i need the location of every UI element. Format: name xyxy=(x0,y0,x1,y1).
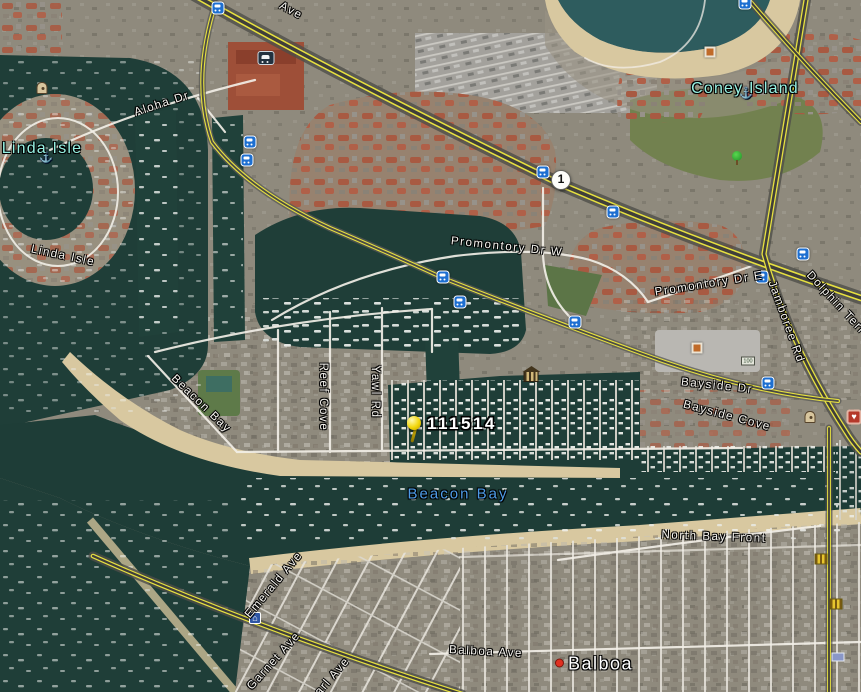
satellite-imagery xyxy=(0,0,861,692)
pushpin-head xyxy=(407,416,421,430)
map-viewport[interactable]: 1100♥⌂⚓⚓ Linda IsleConey IslandAloha DrA… xyxy=(0,0,861,692)
placemark-label: 111514 xyxy=(427,414,497,434)
